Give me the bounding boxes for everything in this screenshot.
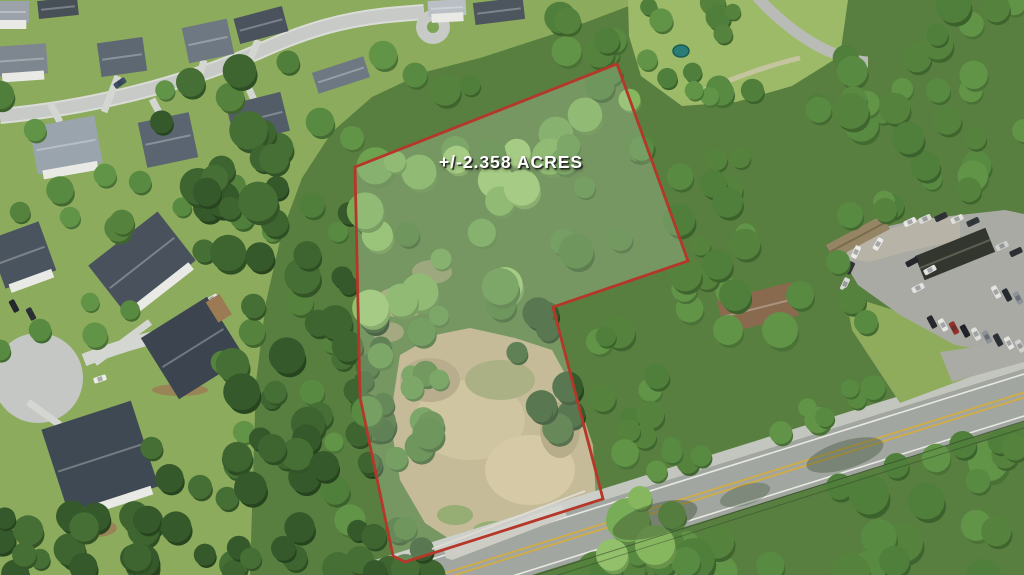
aerial-photo: +/-2.358 ACRES +/-2.358 ACRES <box>0 0 1024 575</box>
tree-canopy <box>293 241 321 269</box>
tree-canopy <box>786 281 814 309</box>
tree-canopy <box>271 536 296 561</box>
tree-canopy <box>340 126 364 150</box>
tree-canopy <box>838 286 866 314</box>
tree-canopy <box>306 108 335 137</box>
tree-canopy <box>690 235 710 255</box>
tree-canopy <box>712 187 743 218</box>
tree-canopy <box>702 249 732 279</box>
tree-canopy <box>926 78 950 102</box>
tree-canopy <box>82 322 107 347</box>
tree-canopy <box>240 548 261 569</box>
tree-canopy <box>155 80 175 100</box>
tree-canopy <box>685 81 704 100</box>
tree-canopy <box>140 437 162 459</box>
tree-canopy <box>264 381 287 404</box>
house <box>0 43 48 82</box>
tree-canopy <box>223 373 260 410</box>
tree-canopy <box>309 451 339 481</box>
tree-canopy <box>133 506 160 533</box>
tree-canopy <box>460 75 481 96</box>
tree-canopy <box>403 63 428 88</box>
tree-canopy <box>646 461 667 482</box>
tree-canopy <box>110 210 135 235</box>
tree-canopy <box>922 444 951 473</box>
tree-canopy <box>361 524 386 549</box>
tree-canopy <box>222 442 252 472</box>
tree-canopy <box>806 97 832 123</box>
court-island <box>427 21 439 33</box>
tree-canopy <box>120 300 140 320</box>
tree-canopy <box>769 421 792 444</box>
tree-canopy <box>239 319 265 345</box>
tree-canopy <box>611 439 639 467</box>
tree-canopy <box>833 93 869 129</box>
tree-canopy <box>926 24 948 46</box>
tree-canopy <box>837 56 868 87</box>
tree-canopy <box>429 74 460 105</box>
tree-canopy <box>964 127 986 149</box>
tree-canopy <box>69 512 98 541</box>
tree-canopy <box>854 310 878 334</box>
trampoline <box>673 45 689 57</box>
tree-canopy <box>176 68 205 97</box>
tree-canopy <box>46 176 74 204</box>
tree-canopy <box>837 202 863 228</box>
tree-canopy <box>369 41 397 69</box>
tree-canopy <box>299 192 325 218</box>
tree-canopy <box>762 312 798 348</box>
tree-canopy <box>276 50 299 73</box>
tree-canopy <box>713 315 743 345</box>
tree-canopy <box>269 337 305 373</box>
tree-canopy <box>959 61 987 89</box>
tree-canopy <box>160 511 191 542</box>
tree-canopy <box>956 177 981 202</box>
tree-canopy <box>815 408 834 427</box>
tree-canopy <box>649 8 673 32</box>
tree-canopy <box>29 319 51 341</box>
tree-canopy <box>873 198 897 222</box>
tree-canopy <box>223 54 257 88</box>
tree-canopy <box>618 419 640 441</box>
tree-canopy <box>908 483 945 520</box>
tree-canopy <box>636 401 664 429</box>
tree-canopy <box>259 144 289 174</box>
tree-canopy <box>730 148 750 168</box>
tree-canopy <box>245 242 274 271</box>
tree-canopy <box>690 445 711 466</box>
tree-canopy <box>661 442 682 463</box>
tree-canopy <box>705 148 727 170</box>
tree-canopy <box>554 8 581 35</box>
tree-canopy <box>193 178 221 206</box>
tree-canopy <box>219 197 242 220</box>
tree-canopy <box>879 546 910 575</box>
tree-canopy <box>60 207 81 228</box>
aerial-photo-canvas: +/-2.358 ACRES +/-2.358 ACRES <box>0 0 1024 575</box>
tree-canopy <box>12 542 36 566</box>
tree-canopy <box>13 515 43 545</box>
tree-canopy <box>637 49 658 70</box>
tree-canopy <box>123 543 151 571</box>
tree-canopy <box>730 229 761 260</box>
tree-canopy <box>741 79 764 102</box>
tree-canopy <box>10 202 30 222</box>
tree-canopy <box>826 250 850 274</box>
tree-canopy <box>596 326 616 346</box>
tree-canopy <box>94 164 117 187</box>
tree-canopy <box>258 434 286 462</box>
tree-canopy <box>683 63 702 82</box>
tree-canopy <box>238 182 278 222</box>
tree-canopy <box>241 294 266 319</box>
house-wall <box>0 20 26 29</box>
tree-canopy <box>966 469 991 494</box>
tree-canopy <box>155 464 184 493</box>
tree-canopy <box>338 276 357 295</box>
tree-canopy <box>234 471 267 504</box>
tree-canopy <box>81 293 99 311</box>
tree-canopy <box>552 36 582 66</box>
tree-canopy <box>841 379 859 397</box>
tree-canopy <box>849 474 889 514</box>
tree-canopy <box>24 119 46 141</box>
tree-canopy <box>713 24 732 43</box>
tree-canopy <box>667 163 694 190</box>
tree-canopy <box>644 364 669 389</box>
tree-canopy <box>300 380 325 405</box>
tree-canopy <box>229 111 268 150</box>
tree-canopy <box>594 28 620 54</box>
house <box>428 0 467 23</box>
tree-canopy <box>150 110 173 133</box>
house <box>0 1 29 29</box>
tree-canopy <box>725 4 741 20</box>
tree-canopy <box>719 279 751 311</box>
tree-canopy <box>194 544 216 566</box>
tree-canopy <box>657 68 677 88</box>
tree-canopy <box>129 171 151 193</box>
tree-canopy <box>932 105 961 134</box>
house-wall <box>431 12 463 23</box>
acreage-label: +/-2.358 ACRES <box>439 152 583 172</box>
tree-canopy <box>324 432 343 451</box>
tree-canopy <box>188 475 212 499</box>
tree-canopy <box>879 93 910 124</box>
house <box>97 37 147 77</box>
tree-canopy <box>210 235 246 271</box>
tree-canopy <box>892 122 924 154</box>
tree-canopy <box>981 516 1011 546</box>
tree-canopy <box>589 385 616 412</box>
